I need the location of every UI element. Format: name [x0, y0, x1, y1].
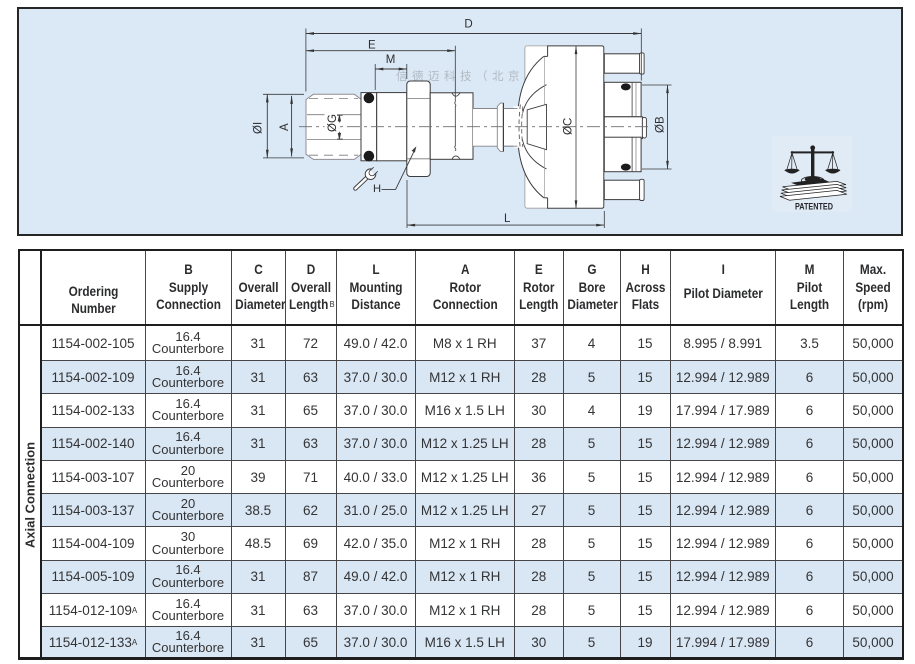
svg-text:ØB: ØB	[655, 116, 667, 133]
svg-text:E: E	[368, 39, 376, 51]
svg-text:PATENTED: PATENTED	[795, 202, 833, 213]
svg-text:ØC: ØC	[562, 118, 574, 135]
svg-text:M: M	[386, 54, 396, 66]
svg-text:L: L	[504, 213, 511, 225]
svg-text:ØG: ØG	[327, 114, 339, 132]
svg-text:D: D	[464, 19, 472, 31]
svg-text:H: H	[373, 183, 381, 195]
svg-text:A: A	[279, 123, 291, 131]
svg-text:ØI: ØI	[253, 122, 265, 134]
